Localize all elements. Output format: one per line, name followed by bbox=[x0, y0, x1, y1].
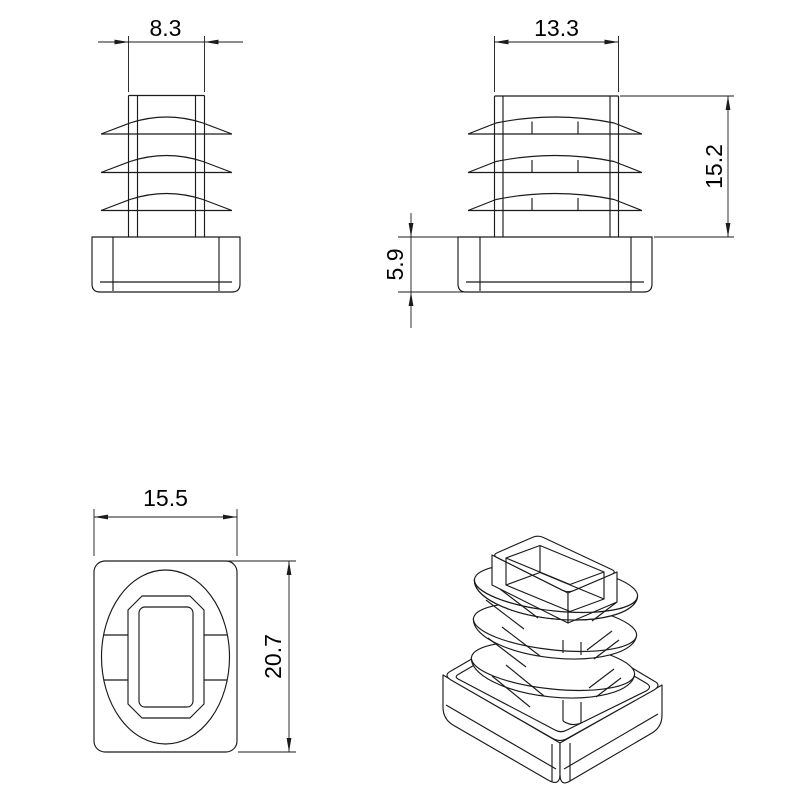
arrowhead-top bbox=[409, 223, 414, 237]
cap-outline bbox=[92, 237, 240, 292]
dim-depth-20-7: 20.7 bbox=[224, 561, 296, 752]
dim-width-8-3: 8.3 bbox=[98, 15, 243, 92]
arrowhead-right bbox=[205, 40, 219, 45]
fin-bottom bbox=[101, 194, 232, 211]
view-side-narrow: 8.3 bbox=[92, 15, 243, 292]
arrowhead-top bbox=[287, 561, 292, 575]
dim-label-width-narrow: 8.3 bbox=[150, 15, 182, 41]
arrowhead-bottom bbox=[726, 223, 731, 237]
fin-top bbox=[101, 117, 232, 134]
dim-width-15-5: 15.5 bbox=[94, 485, 237, 556]
cap-flange-outline bbox=[94, 561, 237, 752]
cap-inner-lines bbox=[100, 237, 232, 291]
plug-outline bbox=[92, 96, 240, 293]
view-isometric bbox=[443, 536, 662, 783]
extension-lines bbox=[94, 509, 237, 556]
plug-outline bbox=[94, 561, 237, 752]
technical-drawing-sheet: 8.3 13.3 15.2 bbox=[0, 0, 800, 800]
view-side-wide: 13.3 15.2 5.9 bbox=[382, 15, 734, 328]
tube-insert-technical-drawing: 8.3 13.3 15.2 bbox=[0, 0, 800, 800]
view-top: 15.5 20.7 bbox=[94, 485, 296, 752]
fin-middle bbox=[101, 156, 232, 173]
dim-label-top-width: 15.5 bbox=[143, 485, 188, 511]
extension-lines bbox=[495, 36, 619, 92]
arrowhead-left bbox=[495, 40, 509, 45]
cavity-outline bbox=[139, 607, 193, 707]
plug-outline bbox=[458, 96, 652, 292]
dim-label-cap-height: 5.9 bbox=[382, 249, 408, 281]
arrowhead-bottom bbox=[287, 738, 292, 752]
extension-lines bbox=[398, 237, 470, 292]
fin-slot-lines bbox=[104, 635, 228, 680]
dim-label-insert-depth: 15.2 bbox=[701, 144, 727, 189]
arrowhead-left bbox=[115, 40, 129, 45]
dim-cap-height-5-9: 5.9 bbox=[382, 213, 470, 328]
arrowhead-right bbox=[605, 40, 619, 45]
cap-outline bbox=[458, 237, 652, 292]
cap-inner-lines bbox=[466, 237, 644, 291]
dim-insert-depth-15-2: 15.2 bbox=[620, 96, 734, 237]
dim-width-13-3: 13.3 bbox=[495, 15, 619, 92]
extension-lines bbox=[129, 36, 205, 92]
arrowhead-bottom bbox=[409, 292, 414, 306]
dim-label-width-wide: 13.3 bbox=[534, 15, 579, 41]
dim-label-top-depth: 20.7 bbox=[260, 634, 286, 679]
arrowhead-top bbox=[726, 96, 731, 110]
arrowhead-right bbox=[223, 515, 237, 520]
arrowhead-left bbox=[94, 515, 108, 520]
